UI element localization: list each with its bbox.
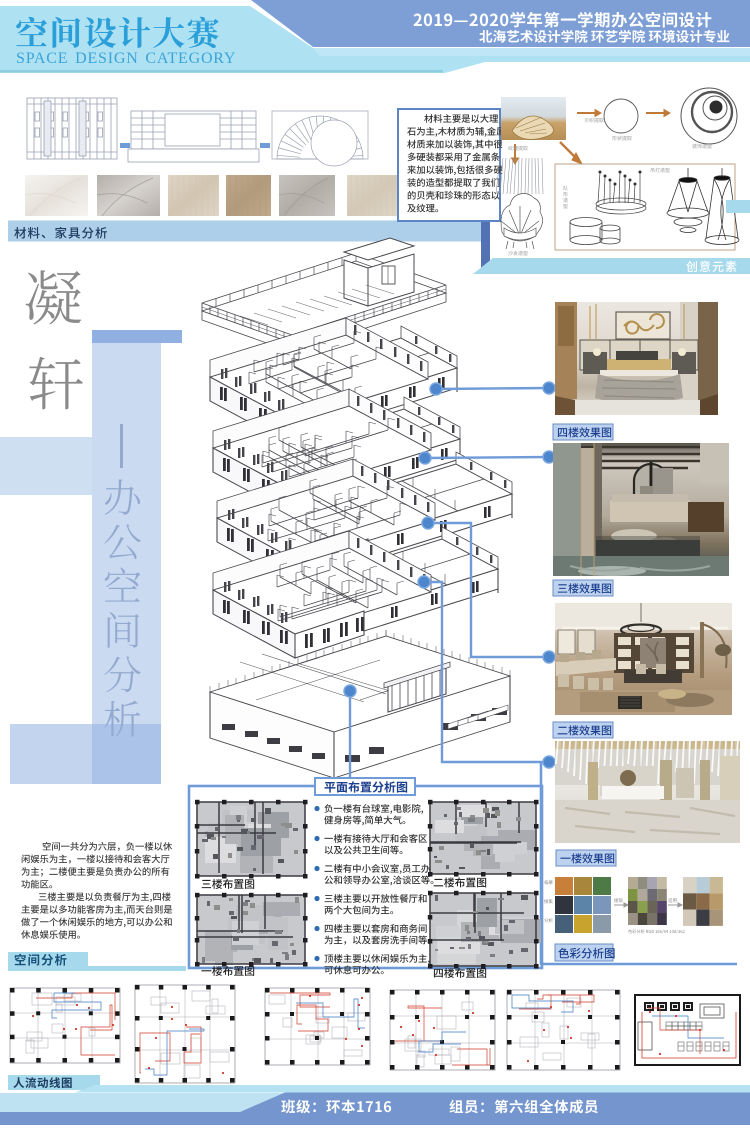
svg-text:SPACE DESIGN CATEGORY: SPACE DESIGN CATEGORY — [16, 50, 236, 67]
